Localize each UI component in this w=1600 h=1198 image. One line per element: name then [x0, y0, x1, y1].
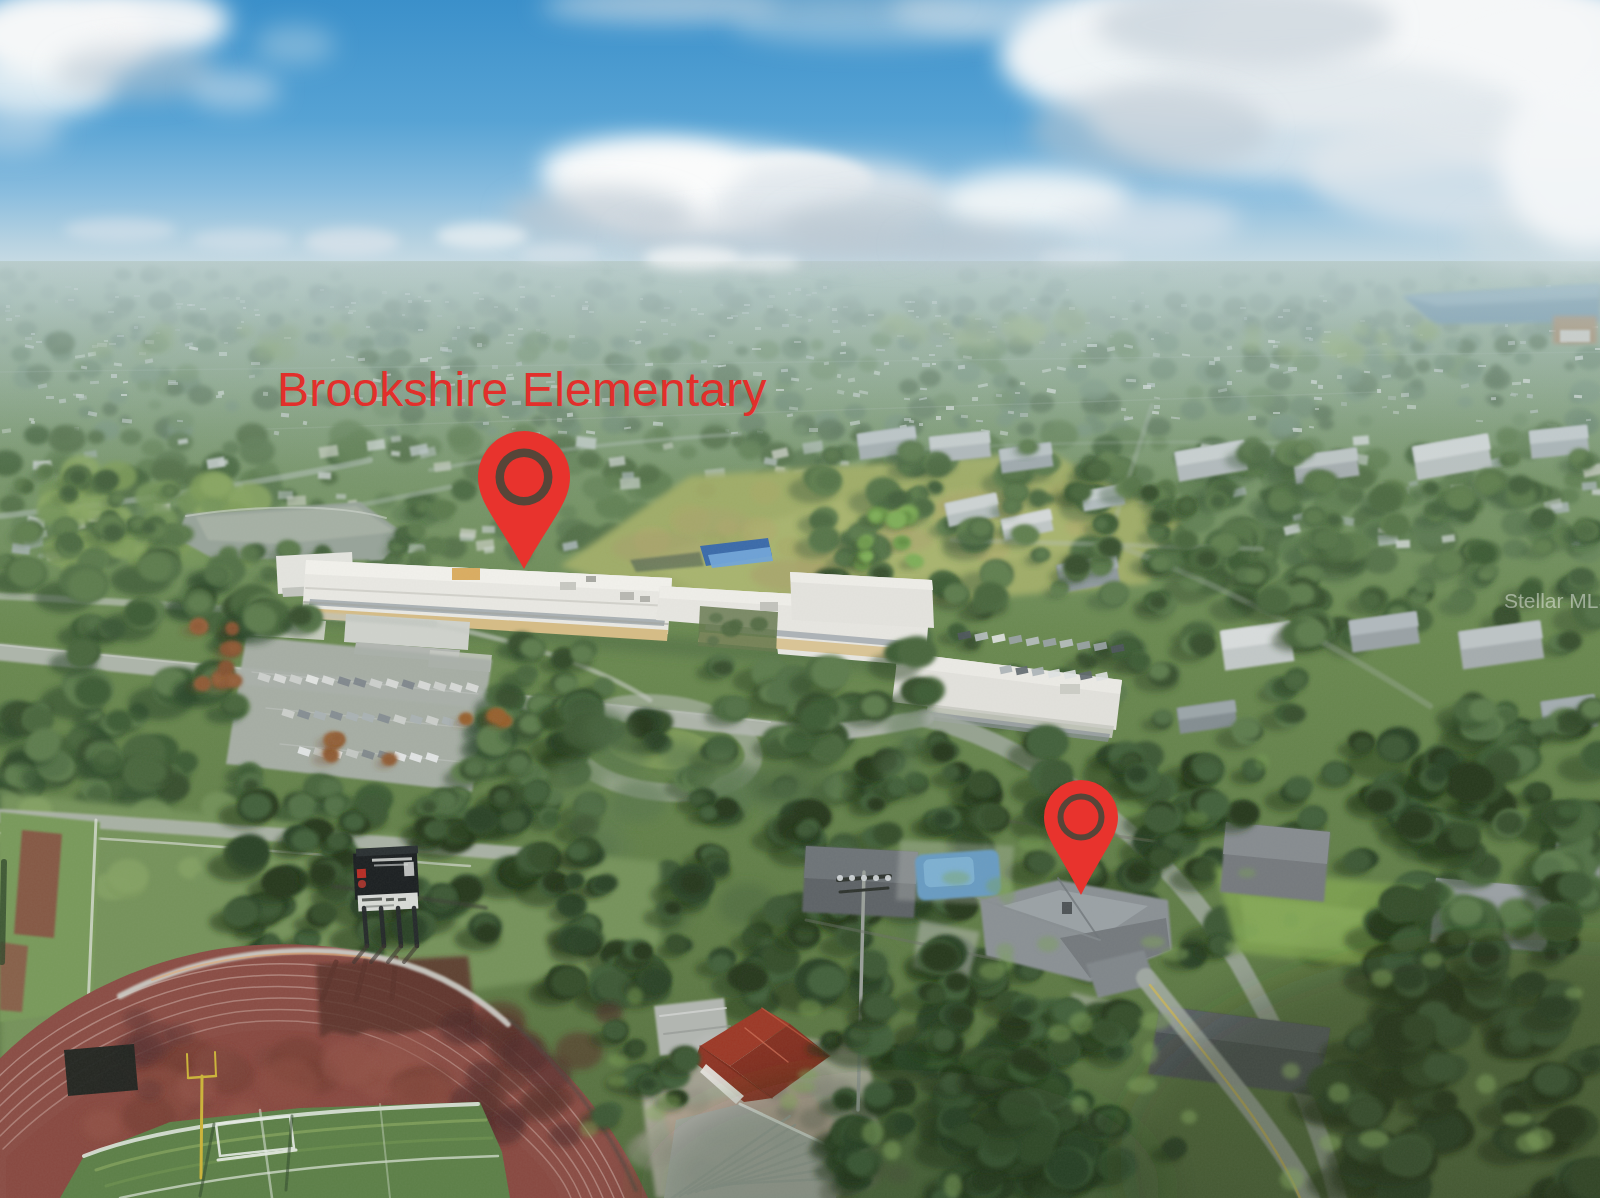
svg-text:Brookshire Elementary: Brookshire Elementary — [277, 363, 767, 416]
svg-text:Stellar MLS: Stellar MLS — [1504, 589, 1600, 612]
